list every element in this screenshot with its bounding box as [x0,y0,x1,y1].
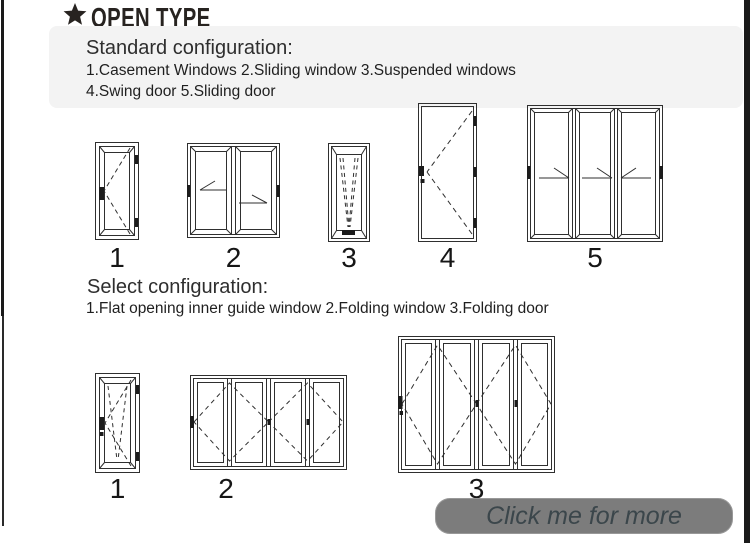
folding-door-figure [398,336,555,473]
sliding-window-figure [187,143,280,238]
standard-config-heading: Standard configuration: [86,37,293,60]
left-edge-bar [1,0,4,316]
left-edge-bar-thin [2,316,4,526]
casement-window-figure [95,142,139,240]
folding-window-figure [190,375,347,470]
sliding-door-figure [527,105,663,242]
figure-number: 1 [95,473,140,505]
page: OPEN TYPE Standard configuration: 1.Case… [0,0,750,543]
figure-number: 5 [527,242,663,274]
standard-config-items-line1: 1.Casement Windows 2.Sliding window 3.Su… [86,62,516,80]
select-config-items-line1: 1.Flat opening inner guide window 2.Fold… [86,300,549,318]
figure-number: 4 [418,242,477,274]
figure-number: 1 [95,242,139,274]
suspended-window-figure [328,143,370,242]
swing-door-figure [418,103,477,242]
flat-opening-inner-guide-window-figure [95,373,140,473]
figure-number: 2 [187,242,280,274]
figure-number: 2 [190,473,262,505]
select-config-heading: Select configuration: [87,276,268,299]
click-me-for-more-button[interactable]: Click me for more [435,498,733,534]
star-icon [63,3,87,26]
right-edge-bar [744,0,750,543]
standard-config-items-line2: 4.Swing door 5.Sliding door [86,83,276,101]
figure-number: 3 [328,242,370,274]
